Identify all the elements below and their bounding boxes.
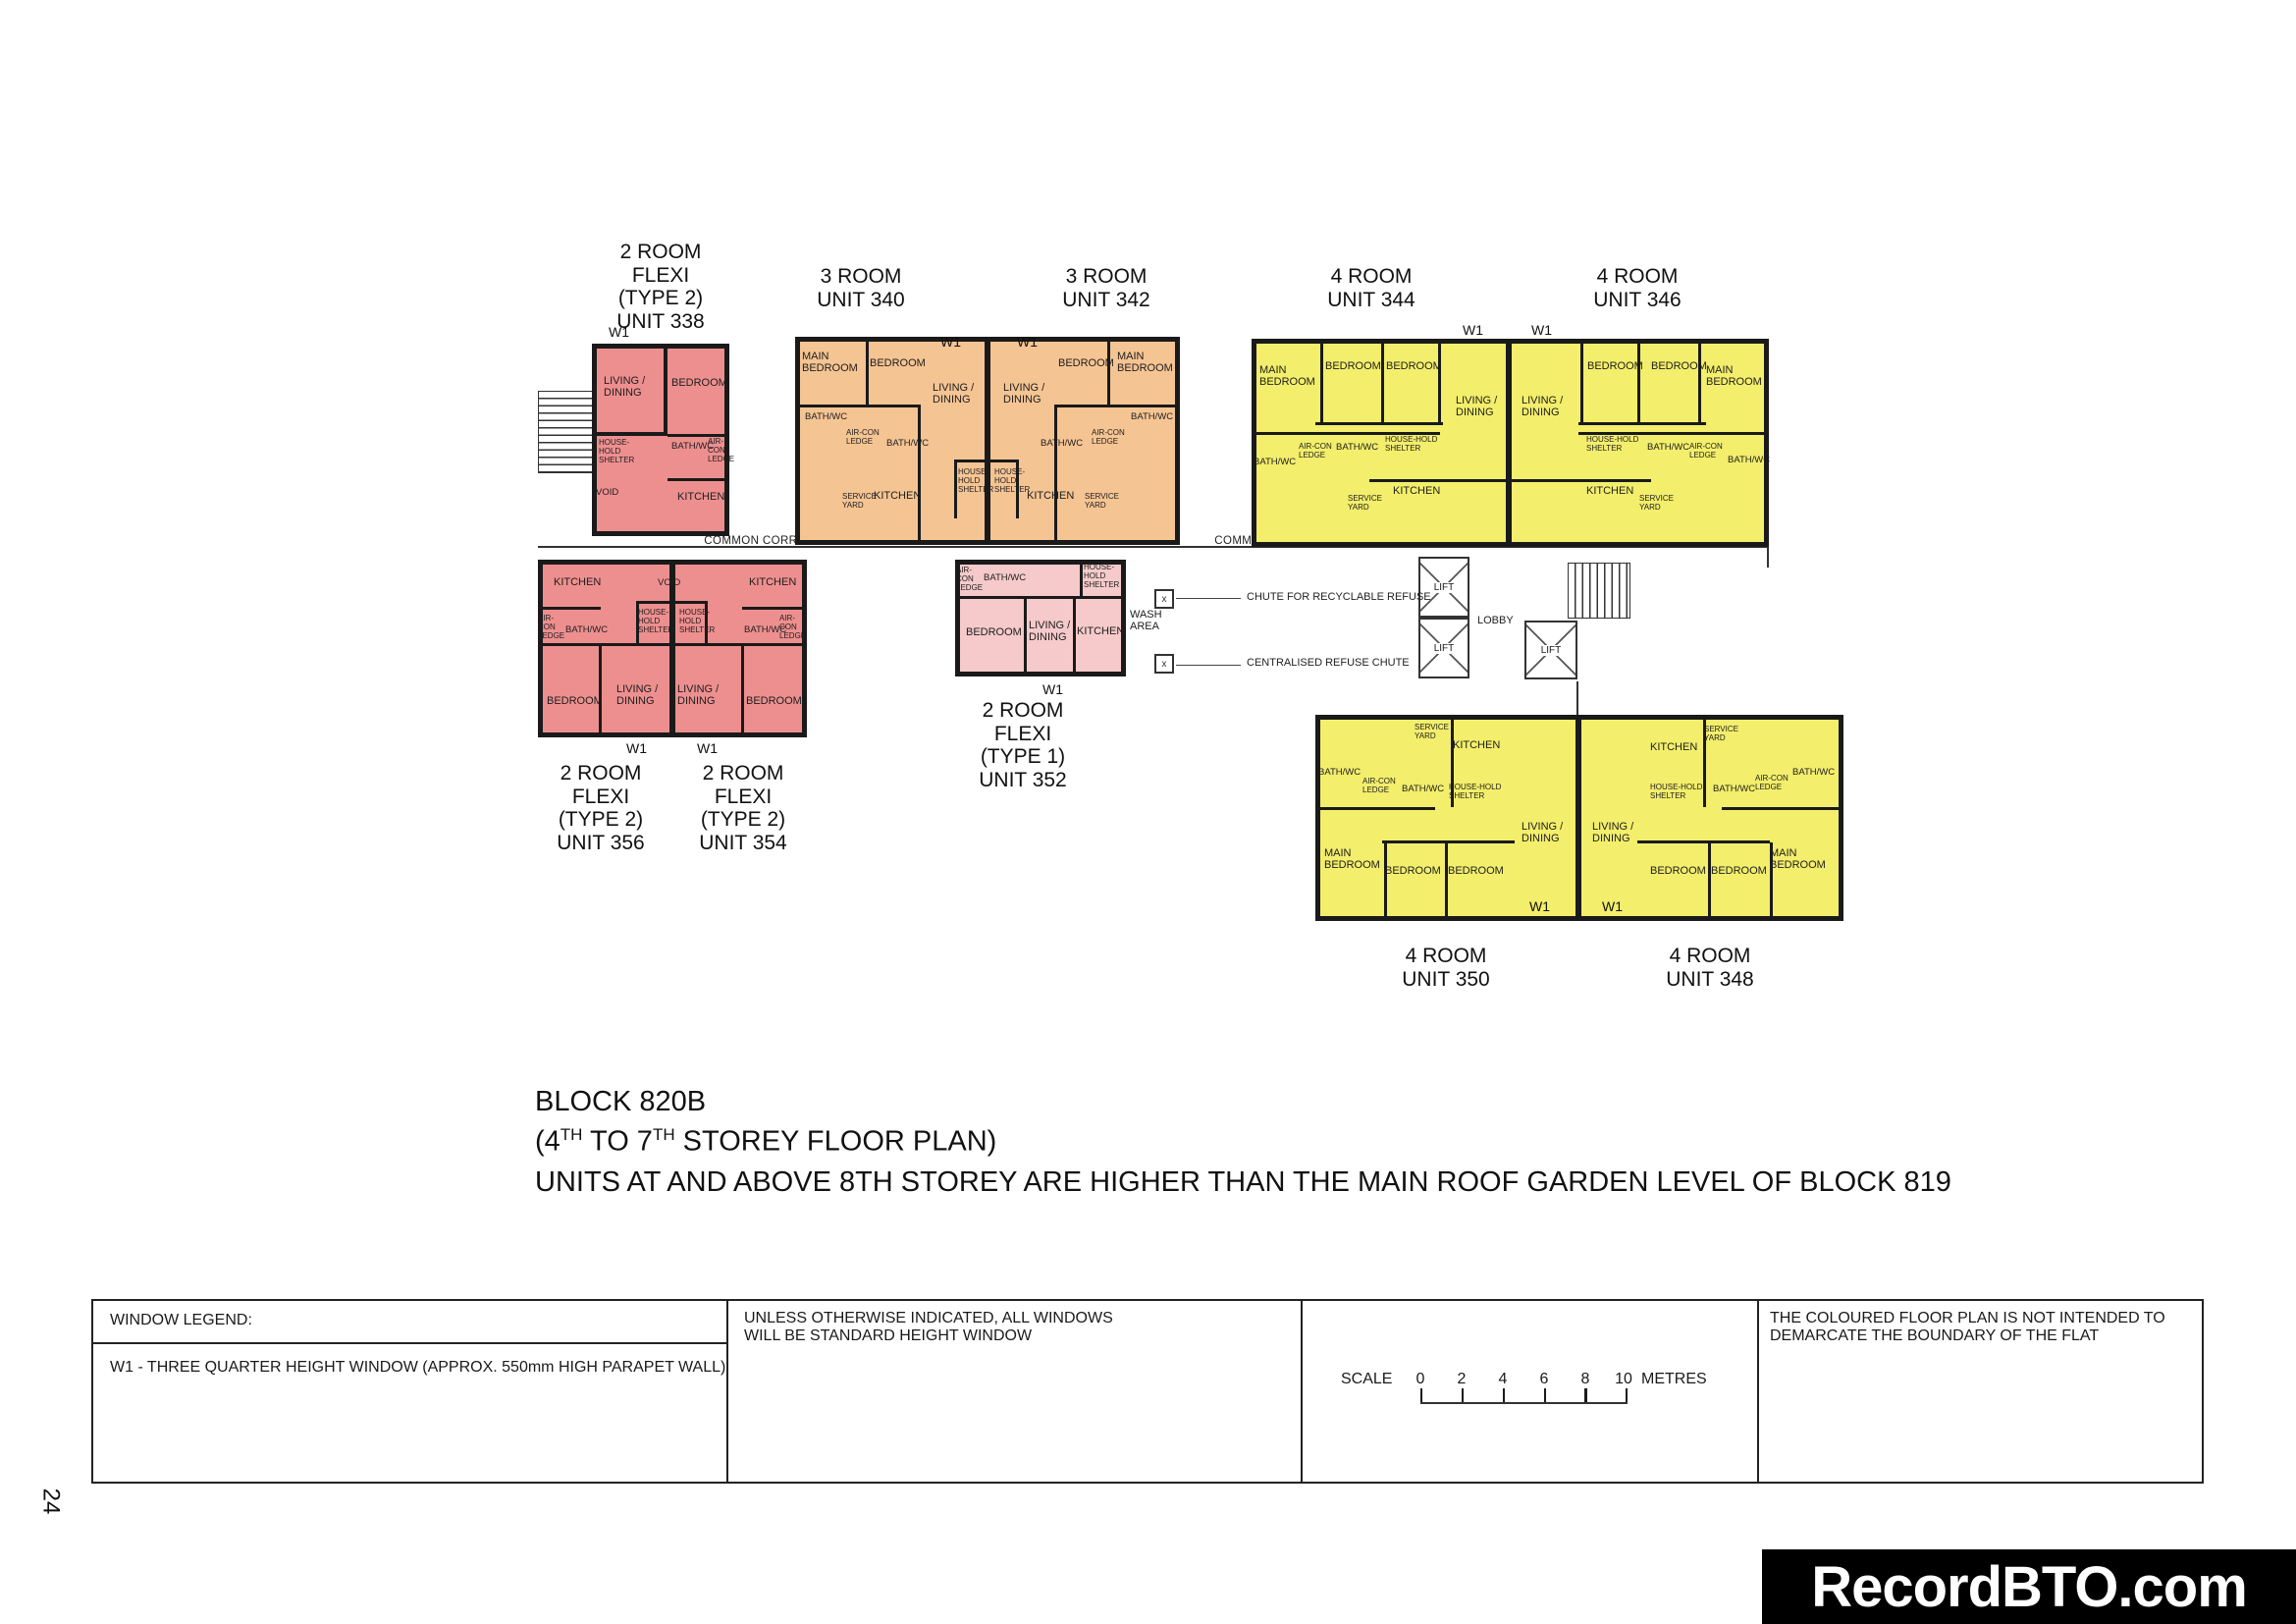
room-label-living-dining: LIVING / DINING [1522, 821, 1578, 845]
wall [954, 460, 957, 518]
recyclable-chute-box: x [1154, 589, 1174, 609]
room-label-kitchen: KITCHEN [554, 576, 601, 588]
unit-352-caption: 2 ROOM FLEXI (TYPE 1) UNIT 352 [939, 699, 1106, 791]
wall [1637, 341, 1640, 425]
room-label-kitchen: KITCHEN [1650, 741, 1697, 753]
leader-line [1176, 598, 1241, 599]
wall [594, 432, 667, 436]
room-label-aircon-ledge: AIR-CON LEDGE [538, 615, 565, 640]
room-label-bath-wc: BATH/WC [1728, 456, 1770, 466]
w1-description: W1 - THREE QUARTER HEIGHT WINDOW (APPROX… [110, 1359, 725, 1377]
scale-tick [1584, 1388, 1587, 1402]
wall [1637, 840, 1770, 843]
scale-tick-label: 10 [1615, 1371, 1632, 1388]
room-label-main-bedroom: MAIN BEDROOM [802, 351, 863, 375]
scale-tick-label: 0 [1416, 1371, 1425, 1388]
wall [1382, 840, 1515, 843]
scale-tick [1626, 1388, 1628, 1402]
w1-marker: W1 [1602, 898, 1623, 914]
room-label-living-dining: LIVING / DINING [1522, 395, 1578, 419]
room-label-bedroom: BEDROOM [1448, 865, 1504, 877]
room-label-kitchen: KITCHEN [1393, 485, 1440, 497]
legend-table-divider [1301, 1299, 1303, 1484]
lift-label: LIFT [1538, 645, 1565, 656]
recyclable-chute-label: CHUTE FOR RECYCLABLE REFUSE [1247, 591, 1431, 603]
room-label-service-yard: SERVICE YARD [1415, 724, 1456, 741]
unit-350-caption: 4 ROOM UNIT 350 [1362, 945, 1529, 991]
room-label-aircon-ledge: AIR-CON LEDGE [708, 438, 739, 463]
unit-342-caption: 3 ROOM UNIT 342 [1023, 265, 1190, 311]
window-legend-title: WINDOW LEGEND: [110, 1312, 252, 1329]
room-label-bath-wc: BATH/WC [1402, 785, 1444, 795]
wall [540, 607, 601, 610]
room-label-bedroom: BEDROOM [1385, 865, 1441, 877]
wall [599, 643, 602, 734]
wall [742, 607, 803, 610]
wall [1708, 842, 1711, 918]
room-label-main-bedroom: MAIN BEDROOM [1117, 351, 1178, 375]
chute-x-mark: x [1162, 594, 1167, 605]
room-label-kitchen: KITCHEN [677, 491, 724, 503]
room-label-bath-wc: BATH/WC [1131, 412, 1172, 423]
party-wall [1506, 339, 1512, 547]
room-label-void: VOID [596, 488, 618, 499]
room-label-bath-wc: BATH/WC [1318, 768, 1361, 779]
wall [1698, 341, 1701, 425]
room-label-bath-wc: BATH/WC [1713, 785, 1755, 795]
scale-tick-label: 2 [1458, 1371, 1467, 1388]
scale-tick [1462, 1388, 1464, 1402]
room-label-household-shelter: HOUSE-HOLD SHELTER [1385, 436, 1446, 454]
unit-338-caption: 2 ROOM FLEXI (TYPE 2) UNIT 338 [577, 241, 744, 333]
wall [1055, 405, 1178, 407]
unit-346-caption: 4 ROOM UNIT 346 [1554, 265, 1721, 311]
wash-area-label: WASH AREA [1130, 609, 1175, 633]
room-label-living-dining: LIVING / DINING [1456, 395, 1513, 419]
wall [1024, 596, 1027, 674]
room-label-kitchen: KITCHEN [1586, 485, 1633, 497]
w1-marker: W1 [1042, 681, 1063, 697]
room-label-bedroom: BEDROOM [1587, 360, 1643, 372]
storey-title: (4TH TO 7TH STOREY FLOOR PLAN) [535, 1125, 996, 1159]
scale-tick [1544, 1388, 1546, 1402]
scale-tick-label: 6 [1540, 1371, 1549, 1388]
chute-x-mark: x [1162, 659, 1167, 670]
watermark-text: RecordBTO.com [1811, 1554, 2247, 1620]
scale-baseline [1420, 1402, 1628, 1404]
corridor-line [1767, 546, 1769, 568]
room-label-kitchen: KITCHEN [1027, 490, 1074, 502]
room-label-aircon-ledge: AIR-CON LEDGE [1362, 778, 1402, 795]
w1-marker: W1 [697, 740, 718, 756]
room-label-service-yard: SERVICE YARD [1085, 493, 1124, 511]
wall [1107, 339, 1110, 405]
room-label-service-yard: SERVICE YARD [1348, 495, 1387, 513]
wall [1578, 422, 1706, 425]
room-label-kitchen: KITCHEN [749, 576, 796, 588]
wall [636, 601, 708, 604]
room-label-main-bedroom: MAIN BEDROOM [1259, 364, 1322, 389]
unit-348-caption: 4 ROOM UNIT 348 [1627, 945, 1793, 991]
unit-344-caption: 4 ROOM UNIT 344 [1288, 265, 1455, 311]
room-label-bedroom: BEDROOM [1058, 357, 1114, 369]
room-label-living-dining: LIVING / DINING [933, 382, 987, 406]
room-label-living-dining: LIVING / DINING [1592, 821, 1649, 845]
wall [1080, 562, 1083, 598]
w1-marker: W1 [1529, 898, 1550, 914]
room-label-bedroom: BEDROOM [547, 695, 603, 707]
room-label-service-yard: SERVICE YARD [1704, 726, 1745, 743]
lift-shaft: LIFT [1524, 621, 1577, 679]
wall [1722, 807, 1840, 810]
wall [797, 405, 920, 407]
room-label-main-bedroom: MAIN BEDROOM [1706, 364, 1769, 389]
wall [1580, 341, 1583, 425]
wall [540, 643, 805, 646]
wall [957, 596, 1122, 599]
wall [1445, 842, 1448, 918]
room-label-household-shelter: HOUSE-HOLD SHELTER [638, 609, 683, 634]
refuse-chute-label: CENTRALISED REFUSE CHUTE [1247, 657, 1410, 669]
leader-line [1176, 665, 1241, 666]
room-label-living-dining: LIVING / DINING [1003, 382, 1057, 406]
legend-table-divider [1757, 1299, 1759, 1484]
party-wall [1575, 715, 1581, 921]
room-label-bedroom: BEDROOM [746, 695, 802, 707]
room-label-living-dining: LIVING / DINING [616, 683, 670, 708]
page-number: 24 [36, 1489, 64, 1515]
wall [954, 460, 1019, 462]
scale-label: SCALE [1341, 1371, 1392, 1388]
wall [741, 643, 744, 734]
legend-table-divider [91, 1342, 726, 1344]
room-label-bath-wc: BATH/WC [565, 625, 608, 636]
room-label-household-shelter: HOUSE-HOLD SHELTER [1586, 436, 1647, 454]
room-label-bath-wc: BATH/WC [886, 439, 928, 450]
unit-340-caption: 3 ROOM UNIT 340 [777, 265, 944, 311]
room-label-service-yard: SERVICE YARD [1639, 495, 1679, 513]
scale-tick-label: 4 [1499, 1371, 1508, 1388]
party-wall [985, 337, 990, 545]
scale-tick [1503, 1388, 1505, 1402]
room-label-bedroom: BEDROOM [1386, 360, 1442, 372]
room-label-bedroom: BEDROOM [966, 626, 1022, 638]
room-label-bath-wc: BATH/WC [1254, 458, 1296, 468]
windows-note: UNLESS OTHERWISE INDICATED, ALL WINDOWS … [744, 1310, 1113, 1345]
wall [667, 478, 724, 481]
wall [1054, 405, 1057, 541]
coloured-plan-note: THE COLOURED FLOOR PLAN IS NOT INTENDED … [1770, 1310, 2165, 1345]
wall [918, 405, 921, 541]
storey-note: UNITS AT AND ABOVE 8TH STOREY ARE HIGHER… [535, 1166, 1951, 1199]
room-label-bath-wc: BATH/WC [984, 573, 1026, 584]
wall [1438, 341, 1441, 425]
lobby-label: LOBBY [1477, 615, 1514, 626]
lift-shaft: LIFT [1418, 618, 1469, 678]
room-label-main-bedroom: MAIN BEDROOM [1770, 847, 1833, 872]
room-label-household-shelter: HOUSE-HOLD SHELTER [599, 439, 648, 464]
room-label-bedroom: BEDROOM [870, 357, 926, 369]
w1-marker: W1 [1531, 322, 1552, 338]
room-label-bedroom: BEDROOM [1325, 360, 1381, 372]
scale-tick [1420, 1388, 1422, 1402]
room-label-kitchen: KITCHEN [874, 490, 921, 502]
room-label-bath-wc: BATH/WC [1792, 768, 1835, 779]
room-label-bath-wc: BATH/WC [805, 412, 846, 423]
room-label-bath-wc: BATH/WC [1647, 443, 1689, 454]
room-label-living-dining: LIVING / DINING [604, 375, 665, 400]
wall [1317, 807, 1435, 810]
room-label-aircon-ledge: AIR-CON LEDGE [846, 429, 881, 447]
floor-plan-page: LIFT LIFT LIFT LOBBY x x CHUTE FOR RECYC… [0, 0, 2296, 1624]
block-title: BLOCK 820B [535, 1086, 706, 1118]
w1-marker: W1 [1017, 334, 1038, 350]
room-label-household-shelter: HOUSE-HOLD SHELTER [1449, 784, 1512, 801]
storey-title-sup: TH [653, 1125, 675, 1144]
unit-354-caption: 2 ROOM FLEXI (TYPE 2) UNIT 354 [660, 762, 827, 854]
refuse-chute-box: x [1154, 654, 1174, 674]
room-label-main-bedroom: MAIN BEDROOM [1324, 847, 1387, 872]
lobby-connector-line [1576, 681, 1578, 715]
room-label-kitchen: KITCHEN [1077, 625, 1124, 637]
w1-marker: W1 [626, 740, 647, 756]
room-label-household-shelter: HOUSE-HOLD SHELTER [1084, 564, 1129, 589]
room-label-bedroom: BEDROOM [671, 377, 727, 389]
wall [1315, 422, 1443, 425]
wall [1512, 479, 1651, 482]
lift-label: LIFT [1431, 582, 1458, 593]
room-label-bath-wc: BATH/WC [1041, 439, 1082, 450]
room-label-kitchen: KITCHEN [1453, 739, 1500, 751]
room-label-living-dining: LIVING / DINING [677, 683, 731, 708]
wall [1369, 479, 1509, 482]
room-label-household-shelter: HOUSE-HOLD SHELTER [679, 609, 724, 634]
scale-unit: METRES [1641, 1371, 1707, 1388]
wall [1381, 341, 1384, 425]
storey-title-sup: TH [561, 1125, 583, 1144]
staircase [538, 391, 596, 473]
room-label-aircon-ledge: AIR-CON LEDGE [779, 615, 807, 640]
room-label-aircon-ledge: AIR-CON LEDGE [1689, 443, 1727, 460]
lift-label: LIFT [1431, 643, 1458, 654]
room-label-aircon-ledge: AIR-CON LEDGE [956, 567, 984, 592]
w1-marker: W1 [940, 334, 961, 350]
scale-tick-label: 8 [1581, 1371, 1590, 1388]
legend-table-divider [726, 1299, 728, 1484]
room-label-bedroom: BEDROOM [1711, 865, 1767, 877]
room-label-bedroom: BEDROOM [1651, 360, 1707, 372]
storey-title-part: (4 [535, 1126, 561, 1158]
room-label-aircon-ledge: AIR-CON LEDGE [1092, 429, 1127, 447]
room-label-aircon-ledge: AIR-CON LEDGE [1299, 443, 1336, 460]
lift-shaft: LIFT [1418, 557, 1469, 618]
staircase [1568, 563, 1630, 619]
watermark-banner: RecordBTO.com [1762, 1549, 2296, 1624]
room-label-household-shelter: HOUSE-HOLD SHELTER [1650, 784, 1713, 801]
room-label-bedroom: BEDROOM [1650, 865, 1706, 877]
room-label-aircon-ledge: AIR-CON LEDGE [1755, 775, 1794, 792]
wall [866, 339, 869, 405]
room-label-void: VOID [658, 578, 680, 589]
storey-title-part: STOREY FLOOR PLAN) [675, 1126, 997, 1158]
room-label-bath-wc: BATH/WC [1336, 443, 1378, 454]
room-label-living-dining: LIVING / DINING [1029, 620, 1078, 644]
w1-marker: W1 [1463, 322, 1483, 338]
storey-title-part: TO 7 [582, 1126, 652, 1158]
